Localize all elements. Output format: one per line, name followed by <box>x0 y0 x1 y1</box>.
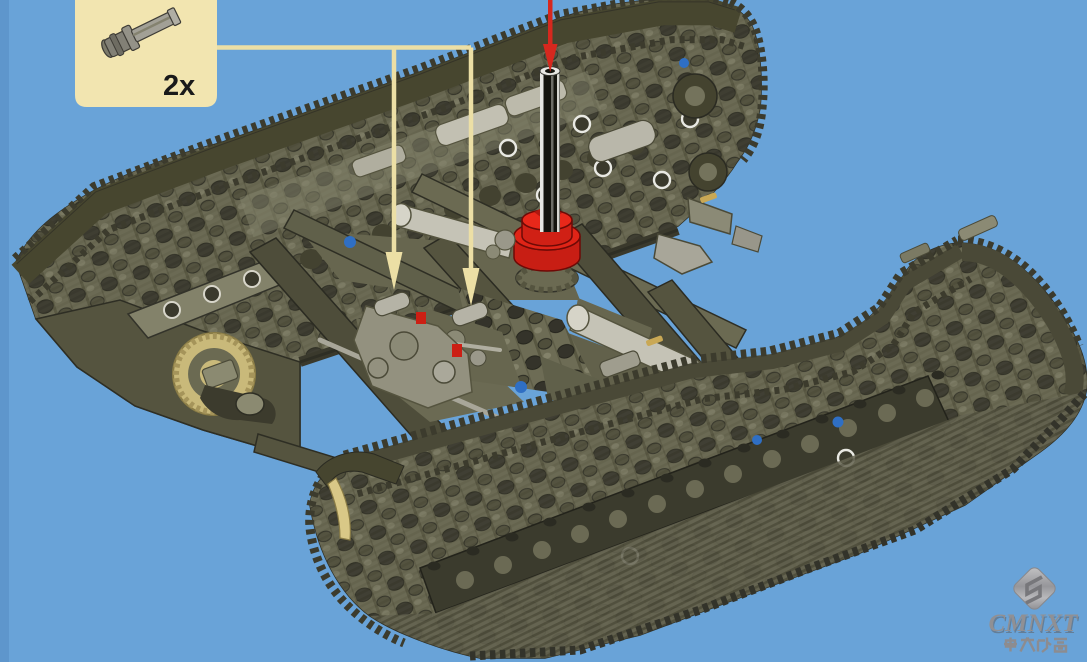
svg-text:CMNXT: CMNXT <box>989 610 1080 637</box>
svg-text:2x: 2x <box>163 70 195 102</box>
